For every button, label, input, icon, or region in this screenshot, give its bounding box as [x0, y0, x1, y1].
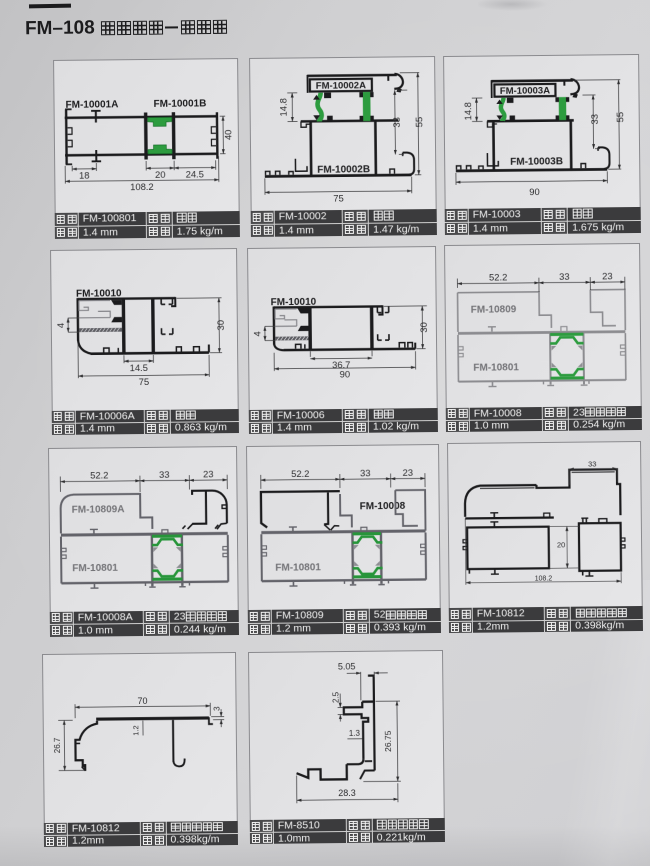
- svg-text:FM-10001B: FM-10001B: [153, 98, 206, 110]
- svg-text:FM-10809A: FM-10809A: [71, 504, 124, 516]
- svg-text:23: 23: [203, 468, 214, 479]
- svg-text:26.7: 26.7: [52, 737, 61, 753]
- svg-text:FM-10003A: FM-10003A: [499, 85, 549, 97]
- svg-text:26.75: 26.75: [383, 730, 393, 752]
- svg-text:FM-10801: FM-10801: [275, 562, 321, 573]
- svg-text:3: 3: [212, 705, 221, 710]
- svg-text:1.3: 1.3: [349, 728, 361, 737]
- svg-text:52.2: 52.2: [90, 469, 108, 480]
- svg-text:33: 33: [390, 117, 401, 128]
- svg-text:FM-10003B: FM-10003B: [510, 156, 563, 168]
- svg-text:33: 33: [360, 467, 371, 478]
- svg-text:23: 23: [402, 466, 413, 477]
- svg-text:14.5: 14.5: [130, 361, 148, 372]
- svg-text:30: 30: [418, 322, 429, 333]
- svg-text:33: 33: [588, 459, 596, 468]
- svg-text:52.2: 52.2: [291, 467, 309, 478]
- svg-text:20: 20: [155, 168, 166, 179]
- svg-text:90: 90: [340, 368, 351, 379]
- svg-text:FM-10801: FM-10801: [473, 362, 519, 373]
- svg-text:90: 90: [529, 185, 540, 196]
- svg-text:108.2: 108.2: [130, 180, 154, 191]
- svg-text:70: 70: [137, 695, 147, 705]
- svg-text:4: 4: [252, 331, 263, 336]
- svg-text:40: 40: [222, 129, 233, 140]
- svg-text:33: 33: [559, 271, 570, 282]
- svg-text:5.05: 5.05: [338, 661, 356, 671]
- svg-text:FM-10002A: FM-10002A: [315, 80, 365, 92]
- svg-text:55: 55: [413, 117, 424, 128]
- svg-text:14.8: 14.8: [277, 98, 288, 116]
- svg-text:28.3: 28.3: [338, 788, 356, 798]
- svg-text:75: 75: [139, 375, 150, 386]
- svg-text:FM-10801: FM-10801: [72, 562, 118, 573]
- svg-text:108.2: 108.2: [535, 575, 553, 582]
- svg-text:18: 18: [79, 169, 90, 180]
- svg-text:1.2: 1.2: [131, 725, 140, 736]
- svg-text:52.2: 52.2: [489, 271, 507, 282]
- svg-text:20: 20: [557, 540, 565, 549]
- svg-text:2.5: 2.5: [331, 691, 340, 703]
- svg-text:55: 55: [614, 111, 625, 122]
- svg-text:33: 33: [159, 468, 170, 479]
- svg-text:30: 30: [215, 319, 226, 330]
- svg-text:23: 23: [602, 270, 613, 281]
- svg-text:FM-10008: FM-10008: [359, 500, 405, 511]
- svg-text:33: 33: [588, 113, 599, 124]
- svg-text:4: 4: [55, 322, 66, 327]
- svg-text:14.8: 14.8: [461, 102, 472, 120]
- svg-text:FM-10809: FM-10809: [471, 304, 517, 315]
- svg-text:24.5: 24.5: [186, 168, 204, 179]
- svg-text:75: 75: [333, 192, 344, 203]
- svg-text:FM-10010: FM-10010: [76, 288, 122, 299]
- svg-text:FM-10001A: FM-10001A: [65, 99, 118, 111]
